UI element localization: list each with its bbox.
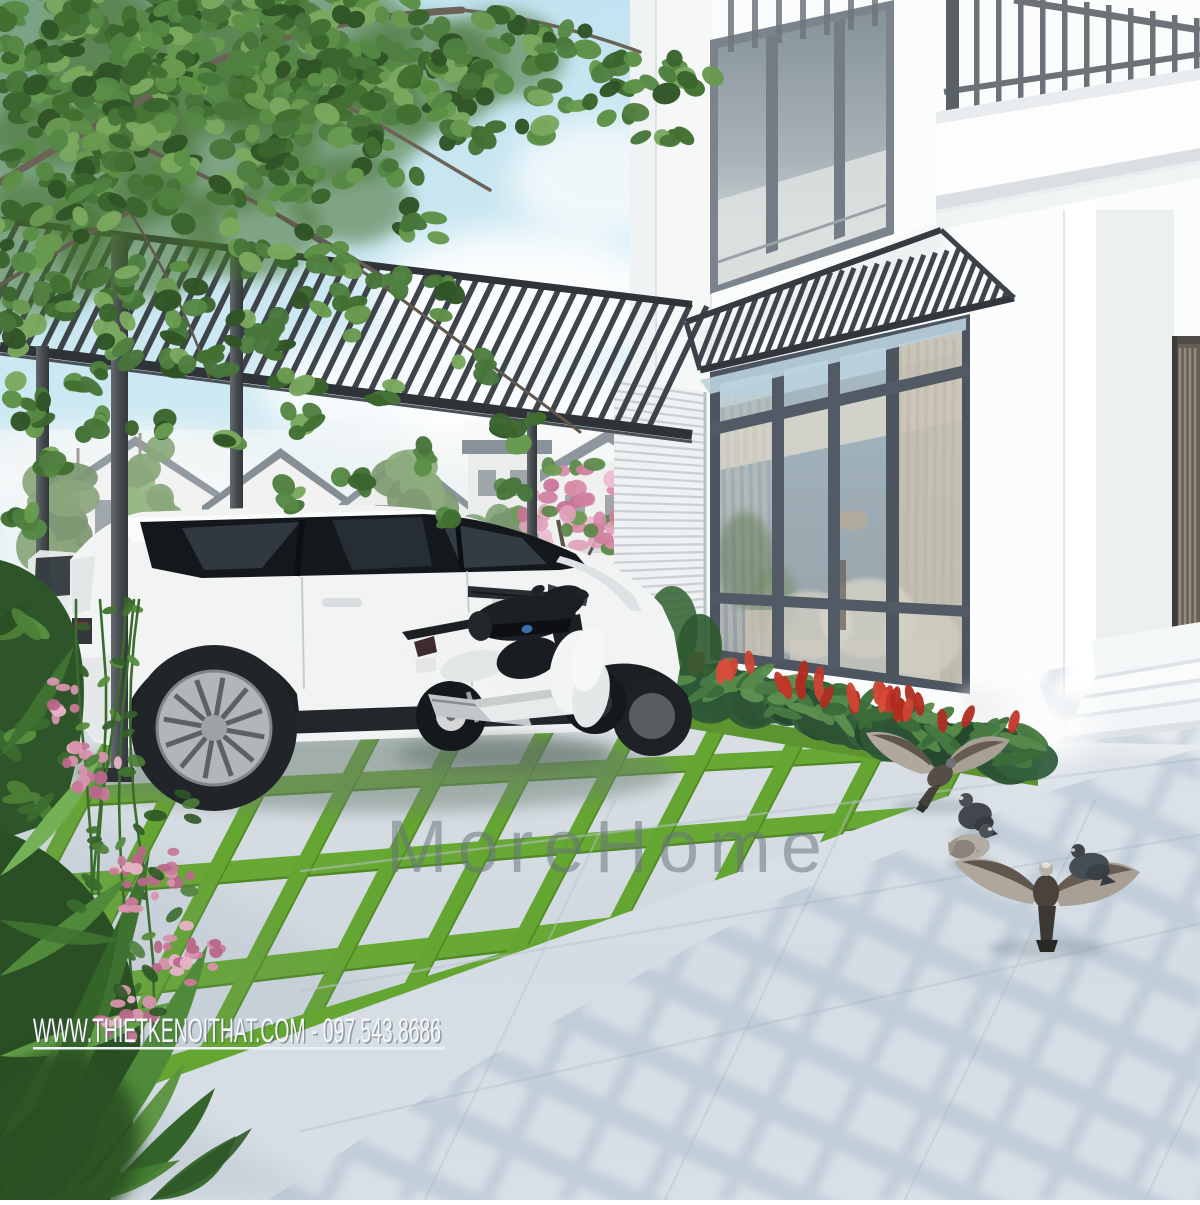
svg-text:MoreHome: MoreHome [386, 805, 832, 888]
svg-text:WWW.THIETKENOITHAT.COM - 097.5: WWW.THIETKENOITHAT.COM - 097.543.8686 [33, 1012, 441, 1050]
